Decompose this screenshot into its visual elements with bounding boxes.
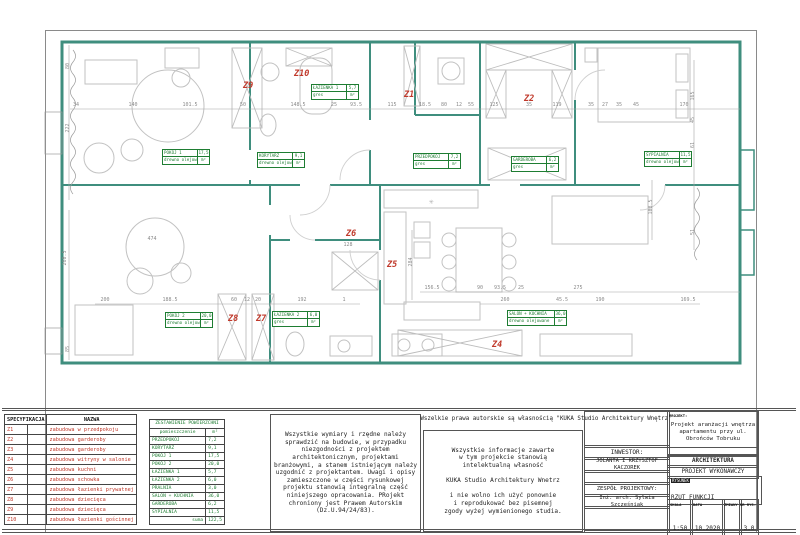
- note-copyright-box: Wszystkie informacje zawartew tym projek…: [423, 430, 583, 532]
- z-label: Z8: [227, 314, 238, 324]
- dimension-label: 192: [297, 297, 306, 303]
- skala-label: SKALA: [670, 502, 681, 507]
- area-row: SYPIALNIA11,5: [150, 509, 225, 517]
- z-label: Z5: [386, 260, 397, 270]
- room-name: KORYTARZ: [258, 153, 293, 159]
- dimension-label: 169.5: [680, 297, 695, 303]
- dimension-label: 125: [489, 102, 498, 108]
- area-col2-header: m²: [206, 429, 225, 437]
- dimension-label: 119: [552, 102, 561, 108]
- z-label: Z4: [491, 340, 502, 350]
- hob-symbol-icon: ✳: [429, 197, 434, 206]
- dimension-label: 25: [518, 285, 524, 291]
- spec-row: Z7zabudowa łazienki prywatnej: [5, 485, 137, 495]
- room-name: PRZEDPOKÓJ: [414, 154, 449, 160]
- note-line: i reprodukować bez pisemnej: [453, 500, 552, 508]
- dimension-label: 284: [408, 257, 414, 266]
- rysunek-label: RYSUNEK: [671, 478, 690, 483]
- room-unit: m²: [547, 164, 558, 170]
- z-label: Z1: [403, 90, 414, 100]
- spec-row: Z3zabudowa garderoby: [5, 445, 137, 455]
- spec-name: zabudowa witryny w salonie: [47, 455, 136, 465]
- area-value: 6,0: [206, 477, 225, 485]
- note-dimensions: Wszystkie wymiary i rzędne należy sprawd…: [270, 414, 421, 532]
- spec-blank: [28, 515, 47, 525]
- room-material: drewno olejowane: [258, 160, 293, 166]
- area-title: ZESTAWIENIE POWIERZCHNI: [150, 420, 225, 429]
- area-row: POKÓJ 220,0: [150, 461, 225, 469]
- dimension-label: 188.5: [162, 297, 177, 303]
- spec-code: Z3: [5, 445, 28, 455]
- plan-symbols: ✳: [429, 197, 434, 206]
- furniture: [75, 48, 690, 356]
- area-value: 36,0: [206, 493, 225, 501]
- dimension-label: 25: [331, 102, 337, 108]
- room-label-box: ŁAZIENKA 26,0gresm²: [272, 311, 320, 327]
- spec-row: Z1zabudowa w przedpokoju: [5, 425, 137, 435]
- spec-blank: [28, 475, 47, 485]
- zmiany-label: ZMIANY: [724, 502, 738, 507]
- area-row: ŁAZIENKA 15,7: [150, 469, 225, 477]
- area-room: ŁAZIENKA 1: [150, 469, 206, 477]
- area-sum-value: 122,5: [206, 517, 225, 525]
- title-block: INWESTOR: JOLANTA I KRZYSZTOF KACZOREK Z…: [584, 411, 758, 531]
- spec-name: zabudowa dziecięca: [47, 505, 136, 515]
- z-label: Z10: [293, 69, 309, 79]
- spec-name: zabudowa łazienki gościnnej: [47, 515, 136, 525]
- dimension-label: 12: [456, 102, 462, 108]
- dimension-label: 200: [100, 297, 109, 303]
- dimension-label: 128: [343, 242, 352, 248]
- area-room: PRALNIA: [150, 485, 206, 493]
- area-row: GARDEROBA6,2: [150, 501, 225, 509]
- spec-name: zabudowa łazienki prywatnej: [47, 485, 136, 495]
- spec-blank: [28, 435, 47, 445]
- spec-row: Z10zabudowa łazienki gościnnej: [5, 515, 137, 525]
- titleblock-empty-bottom: [584, 506, 670, 533]
- dimension-label: 190: [595, 297, 604, 303]
- spec-code: Z8: [5, 495, 28, 505]
- dimension-label: 148.5: [290, 102, 305, 108]
- area-schedule-table: ZESTAWIENIE POWIERZCHNI pomieszczenie m²…: [149, 419, 225, 525]
- dimension-label: 140: [128, 102, 137, 108]
- room-area: 7,2: [449, 154, 460, 160]
- spec-code: Z10: [5, 515, 28, 525]
- dimension-label: 80: [441, 102, 447, 108]
- dimension-label: 18.5: [419, 102, 431, 108]
- dimension-label: 93.5: [350, 102, 362, 108]
- dimension-label: 1: [342, 297, 345, 303]
- data-label: DATA: [693, 502, 702, 507]
- spec-code: Z7: [5, 485, 28, 495]
- dimension-label: 35: [588, 102, 594, 108]
- dimension-label: 27: [602, 102, 608, 108]
- z-label: Z6: [345, 229, 356, 239]
- spec-row: Z6zabudowa schowka: [5, 475, 137, 485]
- dimension-label: 61: [690, 142, 696, 148]
- area-row: KORYTARZ9,1: [150, 445, 225, 453]
- room-name: POKÓJ 2: [166, 313, 201, 319]
- spec-name: zabudowa w przedpokoju: [47, 425, 136, 435]
- spec-row: Z2zabudowa garderoby: [5, 435, 137, 445]
- dimension-label: 45: [690, 117, 696, 123]
- room-name: POKÓJ 1: [163, 150, 198, 156]
- spec-code: Z9: [5, 505, 28, 515]
- room-material: drewno olejowane: [508, 318, 555, 324]
- inwestor-label: INWESTOR:: [611, 449, 644, 456]
- room-area: 17,5: [198, 150, 209, 156]
- room-material: gres: [273, 319, 308, 325]
- dimension-label: 60: [231, 297, 237, 303]
- insulation-lines: [45, 50, 700, 354]
- spec-row: Z9zabudowa dziecięca: [5, 505, 137, 515]
- room-label-box: POKÓJ 220,0drewno olejowanem²: [165, 312, 213, 328]
- spec-blank: [28, 425, 47, 435]
- spec-name: zabudowa schowka: [47, 475, 136, 485]
- spec-blank: [28, 455, 47, 465]
- area-row: PRZEDPOKÓJ7,2: [150, 437, 225, 445]
- z-label: Z9: [242, 81, 253, 91]
- spec-row: Z4zabudowa witryny w salonie: [5, 455, 137, 465]
- spec-row: Z5zabudowa kuchni: [5, 465, 137, 475]
- spec-name: zabudowa garderoby: [47, 435, 136, 445]
- area-value: 17,5: [206, 453, 225, 461]
- room-label-box: GARDEROBA6,2gresm²: [511, 156, 559, 172]
- room-area: 36,0: [555, 311, 566, 317]
- area-value: 5,7: [206, 469, 225, 477]
- room-label-box: ŁAZIENKA 15,7gresm²: [311, 84, 359, 100]
- dimension-label: 85: [65, 346, 71, 352]
- zespol-label: ZESPÓŁ PROJEKTOWY:: [597, 486, 658, 493]
- area-value: 9,1: [206, 445, 225, 453]
- spec-header-col1: SPECYFIKACJA: [5, 415, 47, 425]
- room-unit: m²: [293, 160, 304, 166]
- room-unit: m²: [347, 92, 358, 98]
- data-value: 10.2020: [695, 525, 720, 532]
- area-sum-label: suma: [150, 517, 206, 525]
- spec-name: zabudowa dziecięca: [47, 495, 136, 505]
- spec-code: Z2: [5, 435, 28, 445]
- projekt-label: PROJEKT:: [669, 413, 687, 418]
- area-value: 20,0: [206, 461, 225, 469]
- room-name: GARDEROBA: [512, 157, 547, 163]
- room-name: ŁAZIENKA 1: [312, 85, 347, 91]
- dimension-label: 51: [690, 229, 696, 235]
- dimension-label: 90: [477, 285, 483, 291]
- room-area: 20,0: [201, 313, 212, 319]
- dimension-label: 50: [240, 102, 246, 108]
- drawing-sheet: 34140101.550148.52593.511518.58012551253…: [0, 0, 800, 535]
- spec-name: zabudowa kuchni: [47, 465, 136, 475]
- room-material: gres: [312, 92, 347, 98]
- area-room: SALON + KUCHNIA: [150, 493, 206, 501]
- room-unit: m²: [555, 318, 566, 324]
- dimension-label: 108.5: [648, 199, 654, 214]
- note-line: i nie wolno ich użyć ponownie: [450, 492, 556, 500]
- titleblock-empty-top: [584, 411, 670, 448]
- room-unit: m²: [680, 159, 691, 165]
- spec-code: Z4: [5, 455, 28, 465]
- area-value: 3,0: [206, 485, 225, 493]
- spec-blank: [28, 445, 47, 455]
- room-label-box: KORYTARZ9,1drewno olejowanem²: [257, 152, 305, 168]
- area-col1-header: pomieszczenie: [150, 429, 206, 437]
- dimension-label: 80: [65, 63, 71, 69]
- note-line: KUKA Studio Architektury Wnetrz: [446, 477, 560, 485]
- room-unit: m²: [198, 157, 209, 163]
- z-label: Z2: [523, 94, 534, 104]
- dimension-label: 156.5: [424, 285, 439, 291]
- dimension-label: 222: [65, 123, 71, 132]
- room-area: 6,0: [308, 312, 319, 318]
- area-room: ŁAZIENKA 2: [150, 477, 206, 485]
- room-unit: m²: [449, 161, 460, 167]
- dimension-label: 45.5: [556, 297, 568, 303]
- room-label-box: PRZEDPOKÓJ7,2gresm²: [413, 153, 461, 169]
- room-label-box: SALON + KUCHNIA36,0drewno olejowanem²: [507, 310, 567, 326]
- specification-table: SPECYFIKACJA NAZWA Z1zabudowa w przedpok…: [4, 414, 137, 525]
- room-label-box: POKÓJ 117,5drewno olejowanem²: [162, 149, 210, 165]
- area-room: GARDEROBA: [150, 501, 206, 509]
- area-row: ŁAZIENKA 26,0: [150, 477, 225, 485]
- room-material: drewno olejowane: [166, 320, 201, 326]
- room-name: SALON + KUCHNIA: [508, 311, 555, 317]
- dimension-label: 45: [633, 102, 639, 108]
- note-line: [501, 470, 505, 478]
- floor-plan-svg: 34140101.550148.52593.511518.58012551253…: [0, 0, 800, 410]
- area-room: KORYTARZ: [150, 445, 206, 453]
- nr-value: 3.0: [744, 525, 755, 532]
- note-dimensions-text: Wszystkie wymiary i rzędne należy sprawd…: [273, 431, 418, 515]
- dimension-label: 35: [616, 102, 622, 108]
- spec-blank: [28, 485, 47, 495]
- area-room: POKÓJ 2: [150, 461, 206, 469]
- spec-code: Z5: [5, 465, 28, 475]
- room-area: 5,7: [347, 85, 358, 91]
- spec-name: zabudowa garderoby: [47, 445, 136, 455]
- dimension-label: 275: [573, 285, 582, 291]
- dimension-label: 260: [500, 297, 509, 303]
- spec-code: Z6: [5, 475, 28, 485]
- room-name: SYPIALNIA: [645, 152, 680, 158]
- spec-blank: [28, 505, 47, 515]
- note-line: intelektualną własność: [463, 462, 544, 470]
- dimension-label: 260.5: [62, 250, 68, 265]
- room-material: drewno olejowane: [163, 157, 198, 163]
- area-row: SALON + KUCHNIA36,0: [150, 493, 225, 501]
- room-material: gres: [512, 164, 547, 170]
- spec-header-col2: NAZWA: [47, 415, 136, 425]
- room-area: 9,1: [293, 153, 304, 159]
- dimension-label: 93.5: [494, 285, 506, 291]
- spec-blank: [28, 495, 47, 505]
- dimension-label: 101.5: [182, 102, 197, 108]
- note-line: w tym projekcie stanowią: [459, 454, 547, 462]
- room-area: 11,5: [680, 152, 691, 158]
- spec-row: Z8zabudowa dziecięca: [5, 495, 137, 505]
- dimension-label: 165: [690, 91, 696, 100]
- room-unit: m²: [201, 320, 212, 326]
- note-line: zgody wyżej wymienionego studia.: [444, 508, 561, 516]
- dimension-label: 20: [255, 297, 261, 303]
- area-room: SYPIALNIA: [150, 509, 206, 517]
- projekt-title: Projekt aranżacji wnętrza apartamentu pr…: [668, 418, 758, 443]
- dimension-label: 115: [387, 102, 396, 108]
- skala-value: 1:50: [673, 525, 687, 532]
- spec-blank: [28, 465, 47, 475]
- nr-label: NR RYS.: [740, 502, 756, 507]
- area-room: POKÓJ 1: [150, 453, 206, 461]
- z-label: Z7: [255, 314, 267, 324]
- dimension-label: 34: [73, 102, 79, 108]
- room-material: gres: [414, 161, 449, 167]
- area-room: PRZEDPOKÓJ: [150, 437, 206, 445]
- faza-text: PROJEKT WYKONAWCZY: [682, 469, 745, 476]
- room-material: drewno olejowane: [645, 159, 680, 165]
- area-row: PRALNIA3,0: [150, 485, 225, 493]
- room-name: ŁAZIENKA 2: [273, 312, 308, 318]
- dimension-label: 170: [679, 102, 688, 108]
- dimension-label: 12: [244, 297, 250, 303]
- area-value: 7,2: [206, 437, 225, 445]
- area-row: POKÓJ 117,5: [150, 453, 225, 461]
- area-value: 11,5: [206, 509, 225, 517]
- dimension-label: 474: [147, 236, 156, 242]
- room-label-box: SYPIALNIA11,5drewno olejowanem²: [644, 151, 692, 167]
- area-value: 6,2: [206, 501, 225, 509]
- door-arcs: [290, 70, 665, 280]
- room-area: 6,2: [547, 157, 558, 163]
- branza-text: ARCHITEKTURA: [692, 458, 734, 465]
- spec-code: Z1: [5, 425, 28, 435]
- room-unit: m²: [308, 319, 319, 325]
- dimension-label: 55: [468, 102, 474, 108]
- note-line: Wszystkie informacje zawarte: [452, 447, 555, 455]
